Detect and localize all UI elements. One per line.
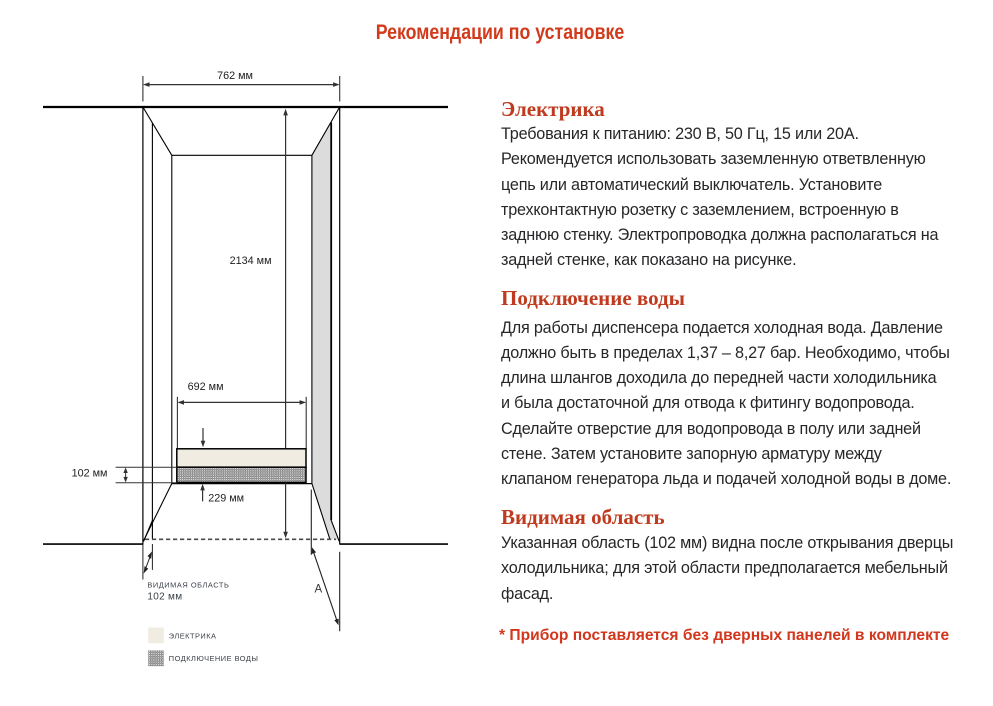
svg-text:ВИДИМАЯ ОБЛАСТЬ: ВИДИМАЯ ОБЛАСТЬ <box>147 581 229 590</box>
svg-text:2134 мм: 2134 мм <box>230 255 272 267</box>
svg-text:102 мм: 102 мм <box>147 592 182 603</box>
svg-text:692 мм: 692 мм <box>188 381 224 393</box>
svg-text:A: A <box>314 584 322 596</box>
svg-text:ПОДКЛЮЧЕНИЕ ВОДЫ: ПОДКЛЮЧЕНИЕ ВОДЫ <box>169 654 259 663</box>
svg-text:229 мм: 229 мм <box>208 492 244 504</box>
svg-text:ЭЛЕКТРИКА: ЭЛЕКТРИКА <box>169 632 217 641</box>
svg-text:102 мм: 102 мм <box>72 468 108 480</box>
svg-text:762 мм: 762 мм <box>217 70 253 82</box>
